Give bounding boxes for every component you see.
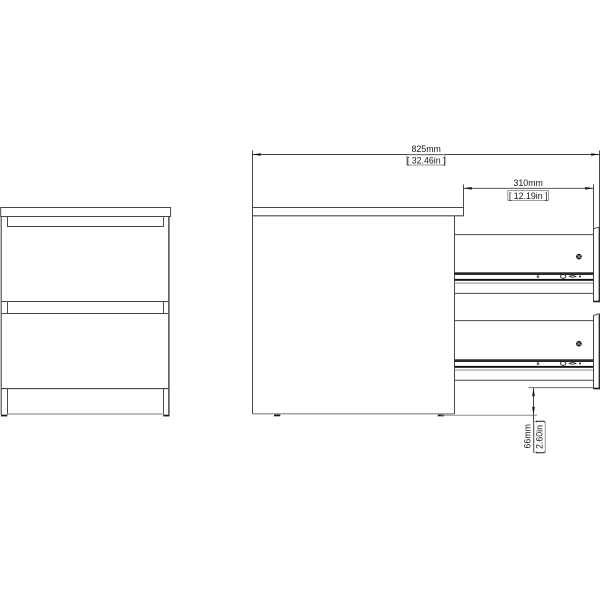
svg-text:310mm: 310mm <box>514 178 543 188</box>
svg-text:[ 32.46in ]: [ 32.46in ] <box>407 155 446 165</box>
svg-text:66mm: 66mm <box>523 424 533 448</box>
svg-text:825mm: 825mm <box>412 144 441 154</box>
svg-text:[ 2.60in ]: [ 2.60in ] <box>535 420 545 454</box>
svg-text:[ 12.19in ]: [ 12.19in ] <box>509 191 548 201</box>
